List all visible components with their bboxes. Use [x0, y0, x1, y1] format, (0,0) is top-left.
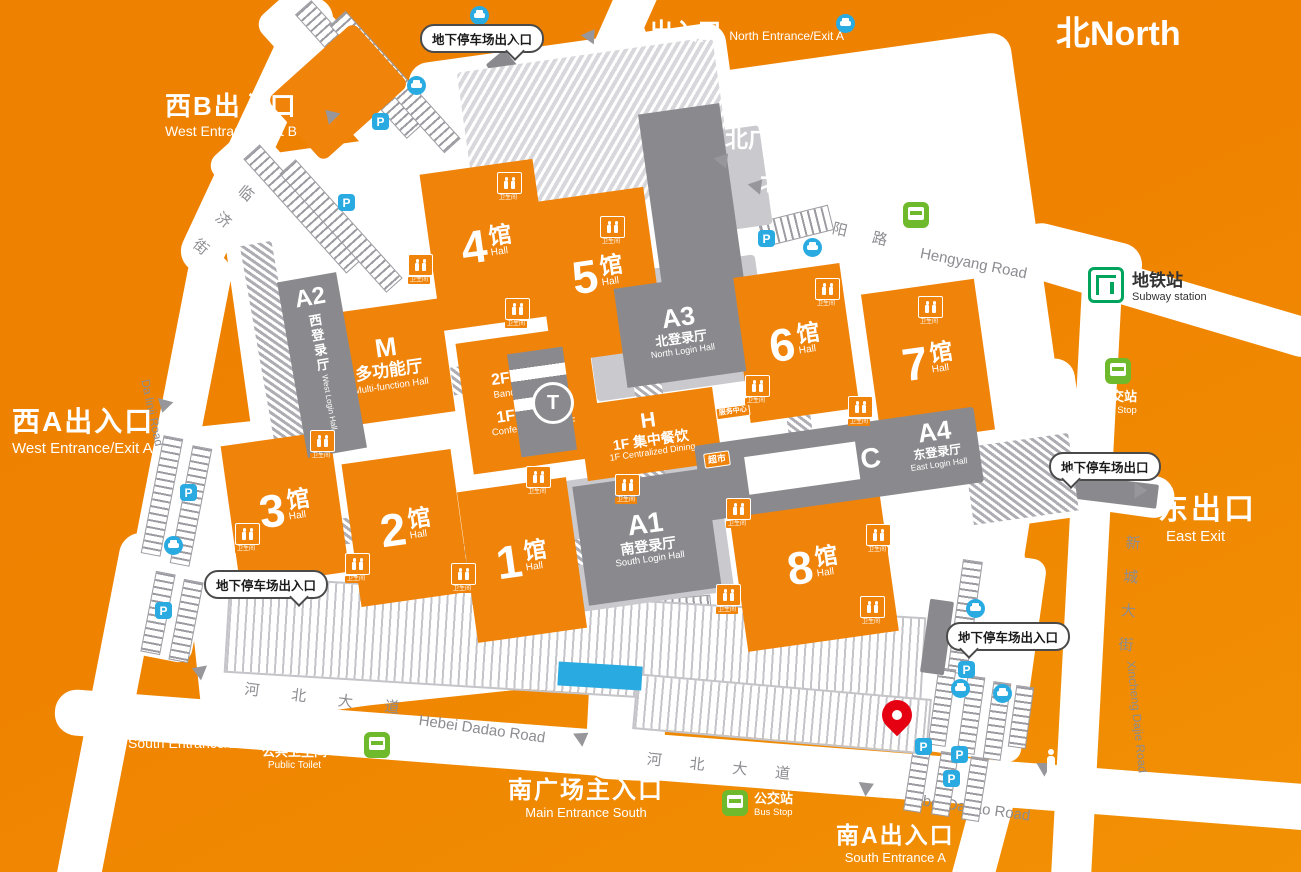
a3-north-login-hall: A3 北登录厅 North Login Hall: [614, 272, 747, 388]
toilet-icon: [526, 466, 551, 488]
public-toilet-southeast: 公共卫生间 Public Toilet: [1028, 748, 1093, 807]
parking-p-icon: P: [915, 738, 932, 755]
bus-icon: [364, 732, 390, 758]
toilet-icon: [235, 523, 260, 545]
toilet-icon: [497, 172, 522, 194]
toilet-icon: [716, 584, 741, 606]
entrance-north-a: 北A出入口 North Entrance/Exit A: [608, 12, 844, 47]
callout-parking-exit-e: 地下停车场出口: [1049, 452, 1161, 481]
toilet-icon: [615, 474, 640, 496]
callout-parking-entrance-nw: 地下停车场出入口: [420, 24, 544, 53]
a4-label-block: A4 东登录厅 East Login Hall: [893, 413, 979, 475]
hall-7-number: 7: [899, 339, 931, 388]
t-monument: T: [532, 382, 574, 424]
toilet-badge: 卫生间: [848, 396, 873, 426]
toilet-tag-label: 卫生间: [600, 239, 622, 246]
entrance-south-a: 南A出入口 South Entrance A: [836, 816, 955, 865]
t-monument-label: T: [547, 392, 559, 415]
toilet-icon: [848, 396, 873, 418]
car-icon: [470, 6, 489, 25]
toilet-figures-icon: [281, 712, 309, 738]
toilet-badge: 卫生间: [451, 563, 476, 593]
callout-parking-entrance-w: 地下停车场出入口: [204, 570, 328, 599]
entrance-west-a: 西A出入口 West Entrance/Exit A: [12, 400, 154, 457]
toilet-tag-label: 卫生间: [526, 489, 548, 496]
bus-stop-south-main: 公交站 Bus Stop: [722, 788, 793, 818]
plaza-water-strip: [557, 661, 642, 690]
parking-p-icon: P: [958, 661, 975, 678]
toilet-badge: 卫生间: [345, 553, 370, 583]
exit-east: 东出口 East Exit: [1158, 484, 1257, 545]
car-icon: [951, 679, 970, 698]
subway-icon: [1088, 267, 1124, 303]
car-icon: [993, 684, 1012, 703]
car-icon: [966, 599, 985, 618]
toilet-icon: [345, 553, 370, 575]
toilet-badge: 卫生间: [918, 296, 943, 326]
parking-p-icon: P: [372, 113, 389, 130]
hall-5-number: 5: [569, 252, 601, 301]
toilet-icon: [310, 430, 335, 452]
toilet-figures-icon: [1047, 748, 1075, 774]
toilet-badge: 卫生间: [726, 498, 751, 528]
hall-4-number: 4: [458, 222, 490, 271]
toilet-tag-label: 卫生间: [716, 607, 738, 614]
toilet-tag-label: 卫生间: [866, 547, 888, 554]
toilet-tag-label: 卫生间: [235, 546, 257, 553]
entrance-main-south: 南广场主入口 Main Entrance South: [508, 770, 664, 820]
direction-arrow-icon: [1135, 483, 1148, 499]
hall-8-number: 8: [784, 543, 816, 592]
hall-1-number: 1: [493, 537, 525, 586]
a4-inner-court: [744, 442, 860, 495]
road-label-xincheng-zh: 新城大街: [1118, 532, 1142, 656]
bus-stop-south-b: 公交站 Bus Stop: [364, 730, 435, 760]
toilet-tag-label: 卫生间: [860, 619, 882, 626]
car-icon: [407, 76, 426, 95]
toilet-badge: 卫生间: [235, 523, 260, 553]
toilet-tag-label: 卫生间: [815, 301, 837, 308]
parking-p-icon: P: [951, 746, 968, 763]
bus-stop-east: 公交站 Bus Stop: [1098, 358, 1137, 416]
entrance-west-b: 西B出入口 West Entrance/Exit B: [165, 86, 298, 139]
toilet-tag-label: 卫生间: [745, 398, 767, 405]
car-icon: [836, 14, 855, 33]
toilet-badge: 卫生间: [860, 596, 885, 626]
toilet-badge: 卫生间: [526, 466, 551, 496]
toilet-badge: 卫生间: [310, 430, 335, 460]
toilet-icon: [866, 524, 891, 546]
toilet-icon: [745, 375, 770, 397]
toilet-icon: [918, 296, 943, 318]
toilet-tag-label: 卫生间: [451, 586, 473, 593]
north-compass-label: 北North: [1056, 6, 1181, 55]
toilet-badge: 卫生间: [815, 278, 840, 308]
toilet-tag-label: 卫生间: [726, 521, 748, 528]
toilet-icon: [860, 596, 885, 618]
toilet-badge: 卫生间: [505, 298, 530, 328]
callout-parking-entrance-se: 地下停车场出入口: [946, 622, 1070, 651]
road-label-xincheng-en: Xincheng Dajie Road: [1124, 660, 1150, 774]
toilet-icon: [726, 498, 751, 520]
toilet-badge: 卫生间: [600, 216, 625, 246]
parking-p-icon: P: [180, 484, 197, 501]
bus-icon: [722, 790, 748, 816]
bus-stop-north: 公交站 Bus Stop: [903, 200, 974, 230]
parking-p-icon: P: [338, 194, 355, 211]
car-icon: [803, 238, 822, 257]
car-icon: [164, 536, 183, 555]
parking-p-icon: P: [758, 230, 775, 247]
subway-station-group: 地铁站 Subway station: [1088, 266, 1207, 303]
toilet-badge: 卫生间: [716, 584, 741, 614]
bus-icon: [1105, 358, 1131, 384]
toilet-icon: [505, 298, 530, 320]
hall-1: 1 馆Hall: [457, 477, 587, 643]
toilet-icon: [600, 216, 625, 238]
bus-icon: [903, 202, 929, 228]
toilet-tag-label: 卫生间: [497, 195, 519, 202]
toilet-tag-label: 卫生间: [310, 453, 332, 460]
toilet-icon: [408, 254, 433, 276]
toilet-tag-label: 卫生间: [505, 321, 527, 328]
venue-map: T 4 馆Hall 5 馆Hall 6 馆Hall 7 馆Hall 3 馆Hal…: [0, 0, 1301, 872]
toilet-tag-label: 卫生间: [615, 497, 637, 504]
toilet-badge: 卫生间: [615, 474, 640, 504]
toilet-badge: 卫生间: [497, 172, 522, 202]
toilet-badge: 卫生间: [745, 375, 770, 405]
hall-6-number: 6: [766, 320, 798, 369]
parking-p-icon: P: [943, 770, 960, 787]
parking-p-icon: P: [155, 602, 172, 619]
toilet-tag-label: 卫生间: [408, 277, 430, 284]
hall-3-number: 3: [256, 486, 288, 535]
toilet-tag-label: 卫生间: [345, 576, 367, 583]
entrance-north-b: 北B出入口 North Entrance/Exit B: [760, 163, 992, 197]
toilet-badge: 卫生间: [408, 254, 433, 284]
toilet-tag-label: 卫生间: [848, 419, 870, 426]
toilet-icon: [815, 278, 840, 300]
public-toilet-southwest: 公共卫生间 Public Toilet: [262, 712, 327, 771]
toilet-badge: 卫生间: [866, 524, 891, 554]
hall-2-number: 2: [377, 505, 409, 554]
entrance-main-north: 北广场主入口 Main Entrance North: [725, 120, 981, 154]
entrance-south-b: 南B出入口 South Entrance/Exit B: [128, 698, 265, 751]
c-hall-label: C: [859, 442, 883, 474]
toilet-tag-label: 卫生间: [918, 319, 940, 326]
toilet-icon: [451, 563, 476, 585]
